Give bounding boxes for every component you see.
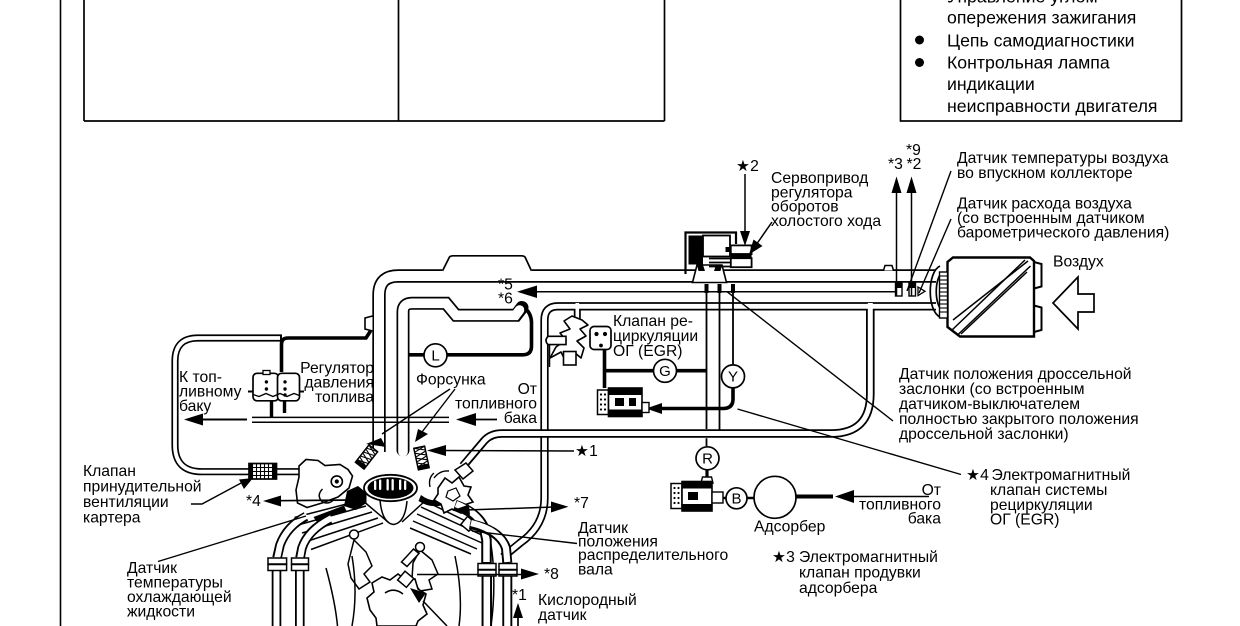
svg-text:ОГ (EGR): ОГ (EGR) — [613, 343, 683, 360]
svg-text:баку: баку — [179, 398, 211, 415]
svg-text:G: G — [659, 363, 671, 380]
svg-text:Воздух: Воздух — [1053, 254, 1104, 271]
svg-text:бака: бака — [504, 410, 538, 427]
svg-text:клапан продувки: клапан продувки — [799, 565, 921, 582]
svg-text:Y: Y — [728, 368, 738, 385]
svg-text:R: R — [702, 450, 713, 467]
svg-text:ОГ (EGR): ОГ (EGR) — [990, 512, 1060, 529]
svg-text:вала: вала — [578, 562, 613, 579]
svg-text:жидкости: жидкости — [127, 604, 195, 621]
svg-text:B: B — [731, 490, 741, 507]
svg-text:индикации: индикации — [947, 74, 1035, 94]
svg-text:Контрольная лампа: Контрольная лампа — [947, 53, 1110, 73]
svg-text:★1: ★1 — [575, 443, 598, 460]
svg-text:принудительной: принудительной — [83, 479, 202, 496]
svg-text:барометрического давления): барометрического давления) — [957, 225, 1169, 242]
svg-text:Адсорбер: Адсорбер — [754, 519, 826, 536]
svg-text:★3: ★3 — [772, 549, 795, 566]
svg-text:*2: *2 — [907, 156, 922, 173]
svg-text:*8: *8 — [544, 566, 559, 583]
svg-text:Управление углом: Управление углом — [947, 0, 1098, 7]
svg-text:адсорбера: адсорбера — [799, 580, 878, 597]
svg-text:*4: *4 — [246, 493, 261, 510]
svg-text:★2: ★2 — [736, 158, 759, 175]
svg-text:холостого хода: холостого хода — [771, 213, 881, 230]
svg-text:картера: картера — [83, 510, 141, 527]
svg-text:опережения зажигания: опережения зажигания — [947, 8, 1136, 28]
svg-text:Электромагнитный: Электромагнитный — [799, 549, 938, 566]
svg-text:неисправности двигателя: неисправности двигателя — [947, 96, 1157, 116]
svg-text:вентиляции: вентиляции — [83, 494, 169, 511]
svg-text:дроссельной заслонки): дроссельной заслонки) — [899, 426, 1069, 443]
svg-text:*6: *6 — [498, 291, 513, 308]
svg-text:Клапан: Клапан — [83, 463, 136, 480]
svg-text:Форсунка: Форсунка — [416, 372, 486, 389]
svg-text:топлива: топлива — [315, 389, 374, 406]
svg-text:Цепь самодиагностики: Цепь самодиагностики — [947, 31, 1134, 51]
svg-text:во впускном коллекторе: во впускном коллекторе — [957, 165, 1133, 182]
svg-text:*3: *3 — [888, 156, 903, 173]
svg-text:★4: ★4 — [966, 467, 989, 484]
svg-text:датчик: датчик — [538, 607, 587, 624]
svg-text:*1: *1 — [512, 587, 527, 604]
svg-text:*7: *7 — [574, 495, 589, 512]
svg-text:L: L — [431, 347, 439, 364]
svg-text:бака: бака — [908, 511, 942, 528]
